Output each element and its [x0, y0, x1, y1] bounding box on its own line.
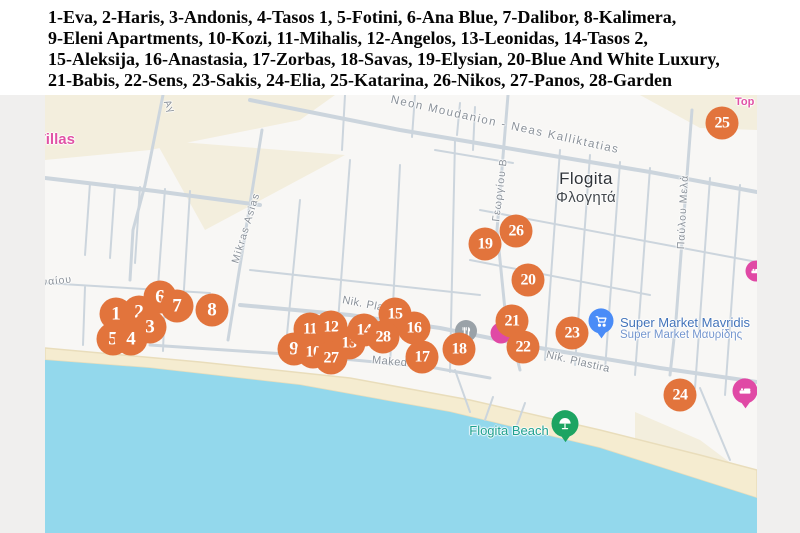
map-marker-25[interactable]: 25: [706, 107, 739, 140]
map-marker-20[interactable]: 20: [512, 264, 545, 297]
map-marker-28[interactable]: 28: [367, 321, 400, 354]
pin-tail: [560, 435, 570, 442]
bed-icon: [751, 266, 758, 277]
beach-label: Flogita Beach: [469, 423, 549, 438]
villas-label: Villas: [45, 131, 75, 148]
bed-icon: [733, 378, 758, 403]
inn-pin[interactable]: [733, 378, 758, 408]
supermarket-name-gr: Super Market Μαυρίδης: [620, 329, 750, 341]
map-canvas[interactable]: Neon Moudanion - Neas KalliktatiasΑγMikr…: [45, 95, 757, 533]
map-marker-24[interactable]: 24: [664, 379, 697, 412]
legend-line-2: 9-Eleni Apartments, 10-Kozi, 11-Mihalis,…: [48, 28, 790, 49]
map-marker-7[interactable]: 7: [161, 290, 194, 323]
map-marker-27[interactable]: 27: [315, 342, 348, 375]
city-name-en: Flogita: [556, 169, 616, 189]
top-partial-label: Top: [735, 96, 754, 108]
pin-tail: [740, 401, 750, 408]
pin-tail: [596, 331, 606, 338]
supermarket-label[interactable]: Super Market Mavridis Super Market Μαυρί…: [620, 316, 750, 341]
city-label: Flogita Φλογητά: [556, 169, 616, 206]
map-marker-18[interactable]: 18: [443, 333, 476, 366]
legend-line-1: 1-Eva, 2-Haris, 3-Andonis, 4-Tasos 1, 5-…: [48, 7, 790, 28]
map-marker-17[interactable]: 17: [406, 341, 439, 374]
legend-line-3: 15-Aleksija, 16-Anastasia, 17-Zorbas, 18…: [48, 49, 790, 70]
page: 1-Eva, 2-Haris, 3-Andonis, 4-Tasos 1, 5-…: [0, 0, 800, 533]
supermarket-name-en: Super Market Mavridis: [620, 316, 750, 329]
map-marker-23[interactable]: 23: [556, 317, 589, 350]
legend-line-4: 21-Babis, 22-Sens, 23-Sakis, 24-Elia, 25…: [48, 70, 790, 91]
map-marker-19[interactable]: 19: [469, 228, 502, 261]
map-marker-16[interactable]: 16: [398, 312, 431, 345]
beach-umbrella-icon: [552, 410, 579, 437]
map-marker-8[interactable]: 8: [196, 294, 229, 327]
map-marker-4[interactable]: 4: [115, 323, 148, 356]
beach-pin[interactable]: [552, 410, 579, 442]
map-marker-22[interactable]: 22: [507, 331, 540, 364]
legend: 1-Eva, 2-Haris, 3-Andonis, 4-Tasos 1, 5-…: [0, 0, 800, 95]
supermarket-pin[interactable]: [589, 308, 614, 338]
shopping-cart-icon: [589, 308, 614, 333]
map-marker-26[interactable]: 26: [500, 215, 533, 248]
city-name-gr: Φλογητά: [556, 189, 616, 206]
